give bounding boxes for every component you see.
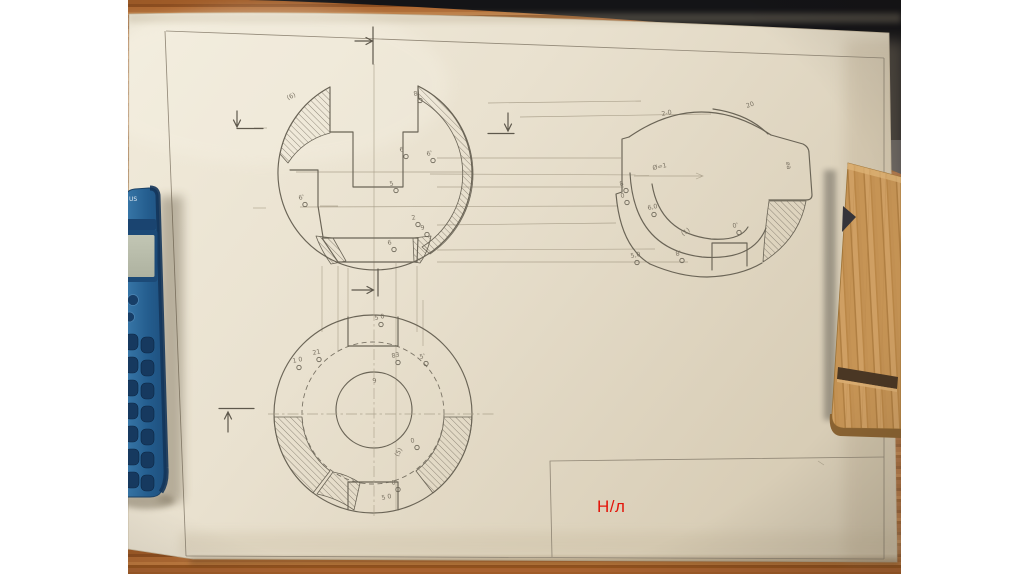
red-annotation: Н/л — [597, 497, 625, 516]
slide: (6)866'56'296 202-0Ø=1806,0(1)0'8'5,0⌀a — [0, 0, 1024, 574]
photo-vignette — [128, 0, 901, 574]
photo-canvas: (6)866'56'296 202-0Ø=1806,0(1)0'8'5,0⌀a — [0, 0, 1024, 574]
photo: (6)866'56'296 202-0Ø=1806,0(1)0'8'5,0⌀a — [90, 0, 905, 574]
